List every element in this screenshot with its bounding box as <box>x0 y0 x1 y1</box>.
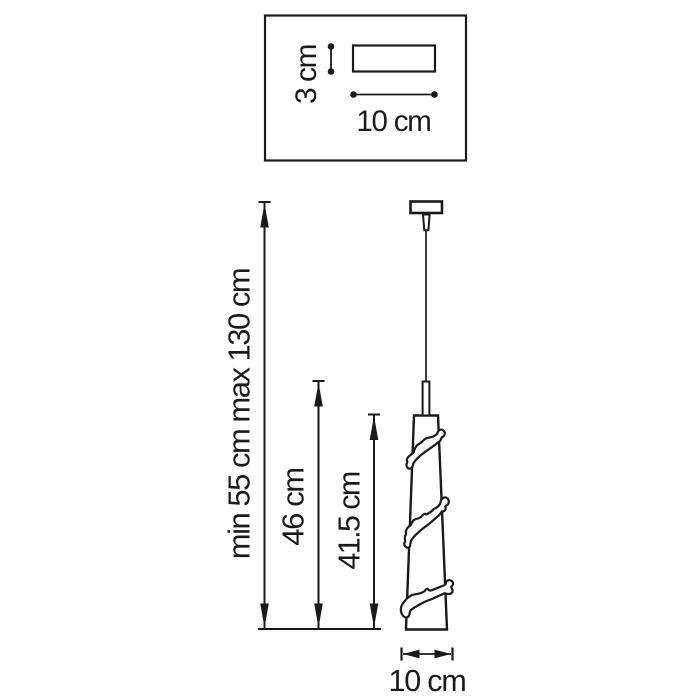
svg-text:min 55 cm max 130 cm: min 55 cm max 130 cm <box>222 269 257 559</box>
svg-text:41.5 cm: 41.5 cm <box>333 472 367 569</box>
svg-text:46 cm: 46 cm <box>276 468 311 545</box>
svg-text:10 cm: 10 cm <box>356 105 430 138</box>
svg-text:3 cm: 3 cm <box>290 44 323 104</box>
svg-text:10 cm: 10 cm <box>388 664 465 698</box>
